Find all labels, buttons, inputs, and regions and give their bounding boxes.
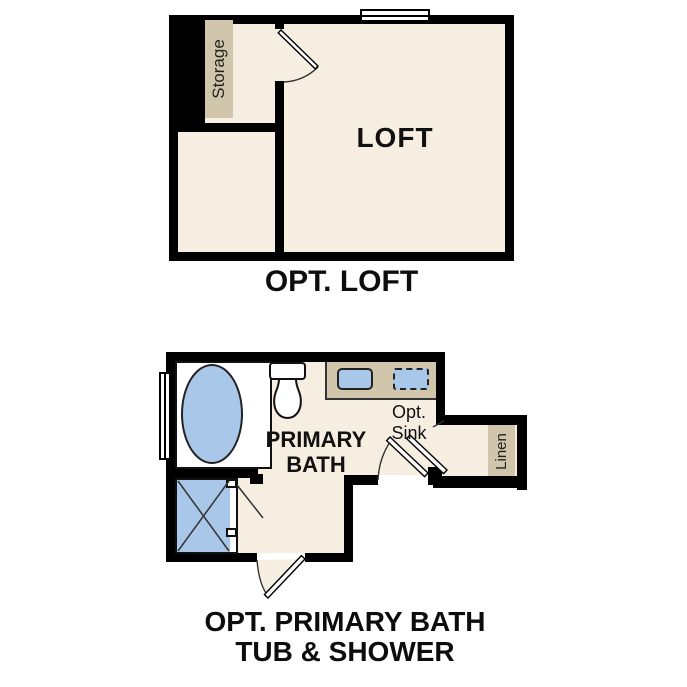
opt-sink-label-line2: Sink [383, 423, 435, 444]
bath-caption: OPT. PRIMARY BATH TUB & SHOWER [150, 607, 540, 667]
primary-bath-label-line1: PRIMARY [256, 427, 376, 452]
bath-window-mullion [164, 374, 166, 458]
loft-storage-bottom-wall [169, 123, 283, 132]
floor-plan-sheet: Storage LOFT OPT. LOFT Linen [0, 0, 687, 687]
loft-window-mullion [362, 15, 428, 17]
corridor-wall-bottom [433, 476, 527, 488]
corridor-wall-top [436, 415, 527, 425]
tub-nook-wall [166, 468, 258, 478]
sink-fixture [337, 368, 373, 390]
opt-sink-label-line1: Opt. [383, 402, 435, 423]
shower-pan [177, 480, 230, 552]
opt-sink-label: Opt. Sink [383, 402, 435, 444]
shower-jamb-top [226, 479, 237, 488]
storage-shelf-fixture: Storage [205, 20, 233, 118]
bath-wall-vertical [344, 475, 353, 562]
loft-partition-wall [275, 81, 284, 256]
loft-window-symbol [360, 9, 430, 22]
loft-caption: OPT. LOFT [169, 265, 514, 299]
loft-room-label: LOFT [340, 122, 450, 154]
linen-closet-fixture: Linen [488, 425, 515, 478]
loft-partition-wall-stub [275, 15, 284, 29]
bath-door-stub [428, 467, 442, 485]
optional-sink-fixture [393, 368, 429, 390]
bath-caption-line1: OPT. PRIMARY BATH [150, 607, 540, 637]
linen-label-wrap: Linen [488, 425, 515, 478]
bath-entry-door-arc [257, 560, 269, 597]
storage-label-wrap: Storage [205, 20, 233, 118]
bath-entry-door-leaf [264, 556, 305, 598]
loft-storage-wall-fill [169, 15, 205, 132]
bath-caption-line2: TUB & SHOWER [150, 637, 540, 667]
primary-bath-label-line2: BATH [256, 452, 376, 477]
primary-bath-label: PRIMARY BATH [256, 427, 376, 477]
bath-wall-bottom-right [305, 553, 353, 562]
shower-jamb-bottom [226, 528, 237, 537]
linen-label: Linen [493, 433, 510, 470]
bathtub-basin [181, 364, 243, 464]
storage-label: Storage [209, 39, 229, 99]
bath-wall-bottom-left [166, 553, 257, 562]
bath-entry-door-swing [257, 559, 305, 597]
bath-window-symbol [159, 372, 171, 460]
